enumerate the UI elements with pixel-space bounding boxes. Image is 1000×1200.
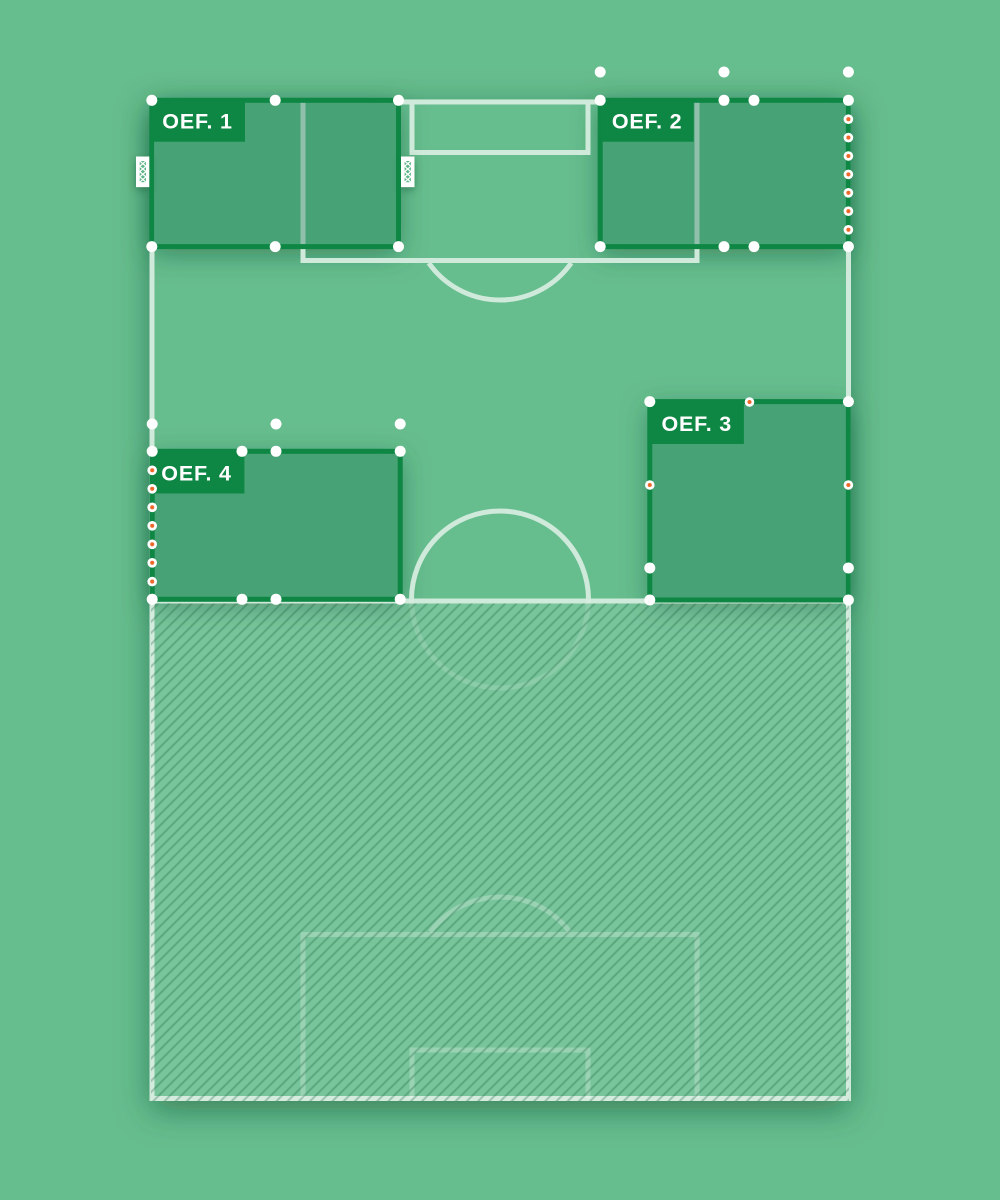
svg-text:OEF. 3: OEF. 3 — [662, 412, 733, 436]
svg-text:OEF. 1: OEF. 1 — [162, 110, 233, 134]
svg-text:OEF. 2: OEF. 2 — [612, 110, 683, 134]
svg-text:OEF. 4: OEF. 4 — [161, 462, 232, 486]
